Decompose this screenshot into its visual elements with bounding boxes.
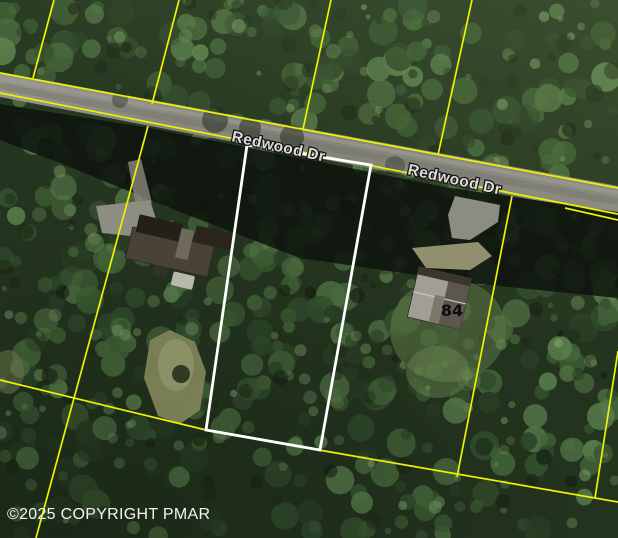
aerial-map-view[interactable]: Redwood Dr Redwood Dr 84 ©2025 COPYRIGHT… bbox=[0, 0, 618, 538]
aerial-map-canvas[interactable]: Redwood Dr Redwood Dr 84 ©2025 COPYRIGHT… bbox=[0, 0, 618, 538]
house-number-label: 84 bbox=[441, 301, 463, 320]
copyright-notice: ©2025 COPYRIGHT PMAR bbox=[7, 506, 210, 523]
